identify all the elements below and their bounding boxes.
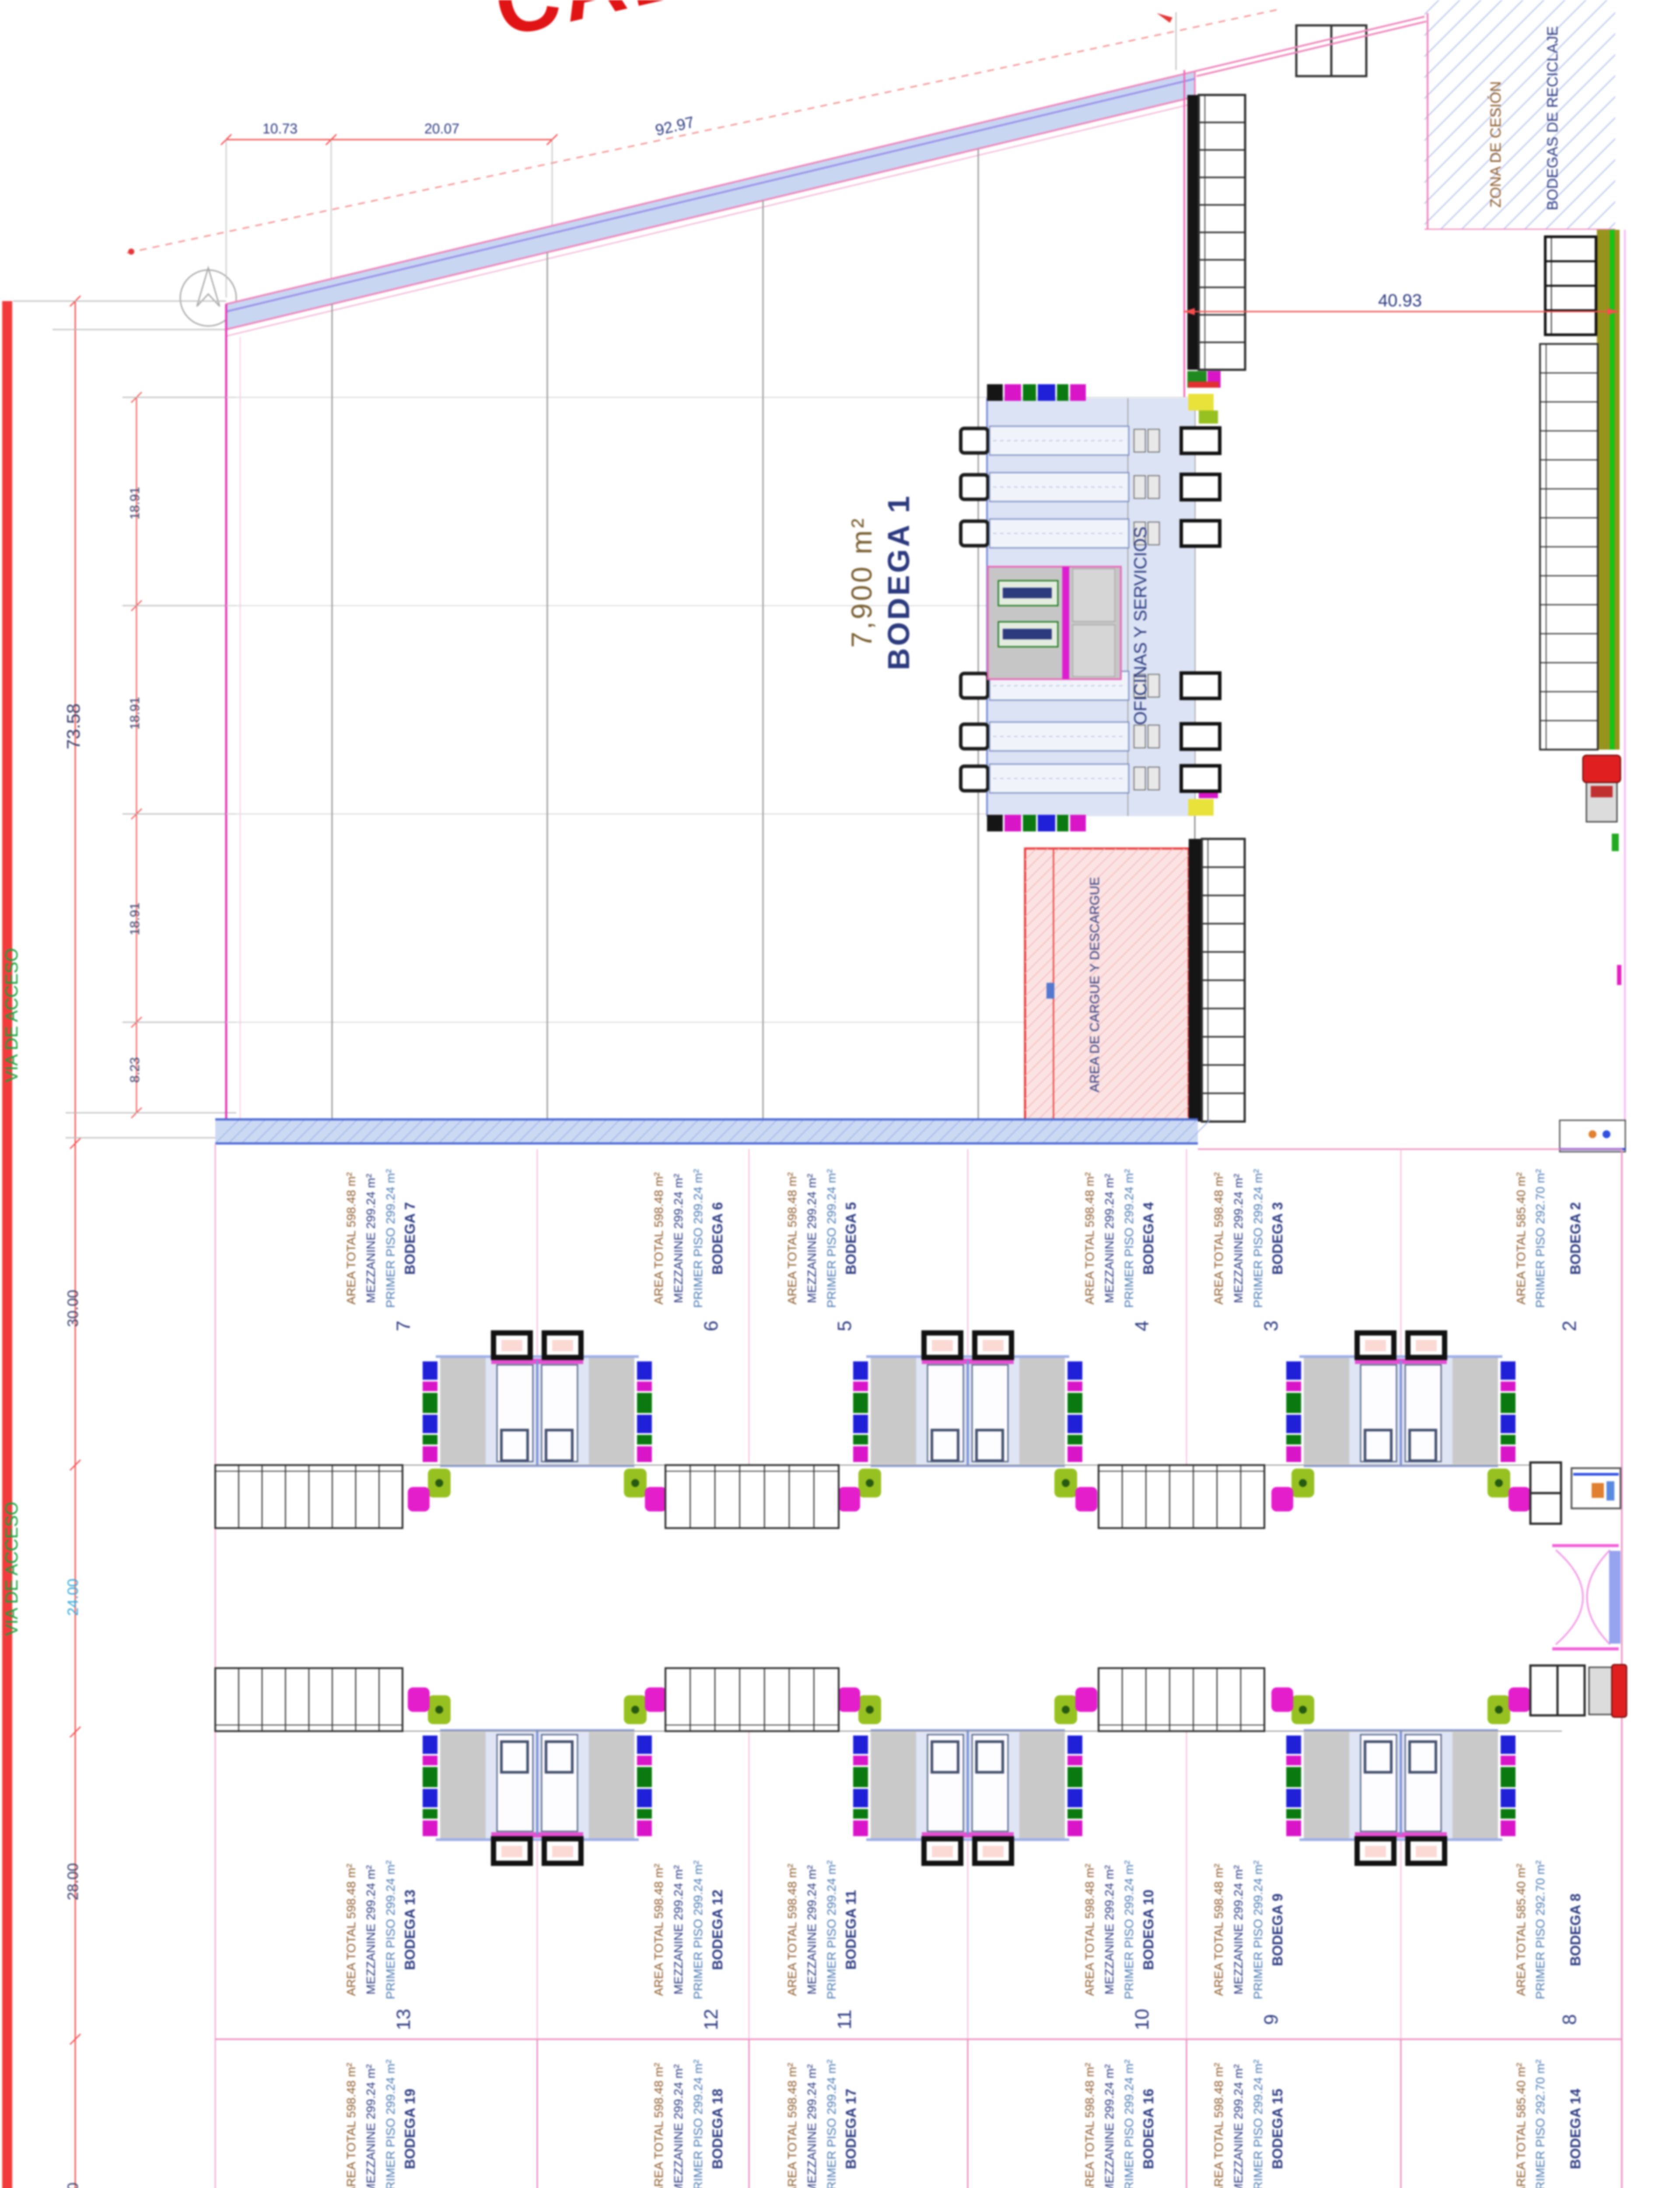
svg-text:PRIMER PISO 299.24 m²: PRIMER PISO 299.24 m² (691, 1860, 705, 1999)
svg-text:MEZZANINE 299.24 m²: MEZZANINE 299.24 m² (1102, 1865, 1116, 1995)
svg-text:PRIMER PISO 299.24 m²: PRIMER PISO 299.24 m² (384, 2059, 397, 2188)
svg-text:BODEGA 9: BODEGA 9 (1270, 1893, 1285, 1966)
svg-text:AREA TOTAL 598.48 m²: AREA TOTAL 598.48 m² (652, 1172, 665, 1304)
svg-text:28.00: 28.00 (65, 1863, 81, 1900)
svg-text:BODEGA 11: BODEGA 11 (843, 1890, 859, 1970)
svg-text:40.93: 40.93 (1378, 291, 1422, 310)
svg-text:MEZZANINE 299.24 m²: MEZZANINE 299.24 m² (364, 1865, 378, 1995)
svg-text:PRIMER PISO 299.24 m²: PRIMER PISO 299.24 m² (825, 2059, 838, 2188)
svg-text:BODEGA 12: BODEGA 12 (710, 1890, 725, 1970)
svg-text:AREA TOTAL 598.48 m²: AREA TOTAL 598.48 m² (785, 1864, 799, 1996)
svg-text:AREA TOTAL 598.48 m²: AREA TOTAL 598.48 m² (785, 1172, 799, 1304)
svg-text:MEZZANINE 299.24 m²: MEZZANINE 299.24 m² (1232, 1865, 1245, 1995)
svg-text:BODEGA 17: BODEGA 17 (843, 2089, 859, 2169)
svg-text:MEZZANINE 299.24 m²: MEZZANINE 299.24 m² (1102, 1174, 1116, 1303)
svg-text:9: 9 (1260, 2014, 1282, 2025)
svg-text:AREA TOTAL 598.48 m²: AREA TOTAL 598.48 m² (344, 1864, 358, 1996)
svg-text:AREA TOTAL 585.40 m²: AREA TOTAL 585.40 m² (1514, 1172, 1528, 1304)
svg-text:MEZZANINE 299.24 m²: MEZZANINE 299.24 m² (1232, 2064, 1245, 2188)
svg-text:2: 2 (1559, 1321, 1580, 1331)
svg-text:30.00: 30.00 (65, 2182, 81, 2188)
svg-text:AREA TOTAL 598.48 m²: AREA TOTAL 598.48 m² (785, 2063, 799, 2188)
svg-text:BODEGA 2: BODEGA 2 (1568, 1202, 1583, 1275)
svg-text:73.58: 73.58 (63, 703, 84, 749)
svg-text:AREA TOTAL 598.48 m²: AREA TOTAL 598.48 m² (1212, 1172, 1225, 1304)
svg-text:MEZZANINE 299.24 m²: MEZZANINE 299.24 m² (672, 1865, 685, 1995)
svg-text:BODEGA 5: BODEGA 5 (843, 1202, 859, 1275)
svg-text:MEZZANINE 299.24 m²: MEZZANINE 299.24 m² (805, 1174, 819, 1303)
svg-text:7: 7 (393, 1321, 414, 1331)
svg-text:13: 13 (393, 2009, 414, 2030)
svg-text:AREA TOTAL 585.40 m²: AREA TOTAL 585.40 m² (1514, 2063, 1528, 2188)
svg-text:MEZZANINE 299.24 m²: MEZZANINE 299.24 m² (364, 1174, 378, 1303)
svg-text:PRIMER PISO 299.24 m²: PRIMER PISO 299.24 m² (1251, 1169, 1265, 1308)
svg-text:BODEGA 16: BODEGA 16 (1141, 2089, 1156, 2169)
svg-text:6: 6 (700, 1321, 722, 1331)
svg-text:BODEGA 10: BODEGA 10 (1141, 1890, 1156, 1970)
svg-text:AREA TOTAL 598.48 m²: AREA TOTAL 598.48 m² (344, 1172, 358, 1304)
svg-text:OFICINAS Y SERVICIOS: OFICINAS Y SERVICIOS (1131, 526, 1150, 725)
svg-text:MEZZANINE 299.24 m²: MEZZANINE 299.24 m² (672, 1174, 685, 1303)
svg-text:VIA DE ACCESO: VIA DE ACCESO (2, 1502, 21, 1636)
svg-text:PRIMER PISO 292.70 m²: PRIMER PISO 292.70 m² (1533, 1860, 1547, 1999)
svg-text:AREA TOTAL 598.48 m²: AREA TOTAL 598.48 m² (652, 2063, 665, 2188)
svg-text:AREA TOTAL 585.40 m²: AREA TOTAL 585.40 m² (1514, 1864, 1528, 1996)
svg-text:30.00: 30.00 (65, 1290, 81, 1327)
svg-text:AREA TOTAL 598.48 m²: AREA TOTAL 598.48 m² (1212, 1864, 1225, 1996)
svg-text:AREA DE CARGUE Y DESCARGUE: AREA DE CARGUE Y DESCARGUE (1088, 877, 1102, 1092)
svg-text:BODEGA 6: BODEGA 6 (710, 1202, 725, 1275)
svg-text:18.91: 18.91 (128, 487, 142, 519)
svg-text:PRIMER PISO 299.24 m²: PRIMER PISO 299.24 m² (1122, 1860, 1136, 1999)
svg-text:PRIMER PISO 299.24 m²: PRIMER PISO 299.24 m² (384, 1860, 397, 1999)
svg-text:VIA DE ACCESO: VIA DE ACCESO (2, 948, 21, 1083)
svg-text:BODEGA 4: BODEGA 4 (1141, 1202, 1156, 1275)
svg-text:ZONA DE CESIÓN: ZONA DE CESIÓN (1487, 81, 1504, 207)
svg-text:PRIMER PISO 299.24 m²: PRIMER PISO 299.24 m² (691, 2059, 705, 2188)
svg-text:8.23: 8.23 (128, 1057, 142, 1083)
svg-text:20.07: 20.07 (424, 121, 459, 137)
svg-text:PRIMER PISO 299.24 m²: PRIMER PISO 299.24 m² (384, 1169, 397, 1308)
svg-text:BODEGA 3: BODEGA 3 (1270, 1202, 1285, 1275)
svg-text:PRIMER PISO 299.24 m²: PRIMER PISO 299.24 m² (1251, 1860, 1265, 1999)
svg-text:3: 3 (1260, 1321, 1282, 1331)
svg-text:PRIMER PISO 299.24 m²: PRIMER PISO 299.24 m² (825, 1860, 838, 1999)
svg-text:4: 4 (1131, 1321, 1153, 1331)
svg-text:PRIMER PISO 299.24 m²: PRIMER PISO 299.24 m² (825, 1169, 838, 1308)
svg-text:10: 10 (1131, 2009, 1153, 2030)
svg-text:MEZZANINE 299.24 m²: MEZZANINE 299.24 m² (364, 2064, 378, 2188)
svg-text:MEZZANINE 299.24 m²: MEZZANINE 299.24 m² (805, 2064, 819, 2188)
svg-text:18.91: 18.91 (128, 697, 142, 729)
svg-text:PRIMER PISO 299.24 m²: PRIMER PISO 299.24 m² (1122, 2059, 1136, 2188)
svg-text:8: 8 (1559, 2014, 1580, 2025)
svg-text:BODEGA 15: BODEGA 15 (1270, 2089, 1285, 2169)
svg-text:MEZZANINE 299.24 m²: MEZZANINE 299.24 m² (672, 2064, 685, 2188)
svg-text:BODEGA 19: BODEGA 19 (402, 2089, 418, 2169)
svg-text:PRIMER PISO 299.24 m²: PRIMER PISO 299.24 m² (691, 1169, 705, 1308)
svg-text:BODEGA 7: BODEGA 7 (402, 1202, 418, 1275)
svg-text:BODEGA 18: BODEGA 18 (710, 2089, 725, 2169)
svg-text:PRIMER PISO 292.70 m²: PRIMER PISO 292.70 m² (1533, 1169, 1547, 1308)
svg-text:BODEGA 14: BODEGA 14 (1568, 2089, 1583, 2169)
svg-text:BODEGA 13: BODEGA 13 (402, 1890, 418, 1970)
svg-text:24.00: 24.00 (65, 1578, 81, 1616)
svg-text:BODEGA 8: BODEGA 8 (1568, 1893, 1583, 1966)
svg-text:12: 12 (700, 2009, 722, 2030)
svg-text:MEZZANINE 299.24 m²: MEZZANINE 299.24 m² (1102, 2064, 1116, 2188)
svg-text:PRIMER PISO 299.24 m²: PRIMER PISO 299.24 m² (1251, 2059, 1265, 2188)
svg-text:18.91: 18.91 (128, 902, 142, 935)
svg-text:10.73: 10.73 (262, 121, 297, 137)
svg-text:BODEGAS DE RECICLAJE: BODEGAS DE RECICLAJE (1544, 26, 1561, 210)
svg-text:MEZZANINE 299.24 m²: MEZZANINE 299.24 m² (1232, 1174, 1245, 1303)
svg-text:MEZZANINE 299.24 m²: MEZZANINE 299.24 m² (805, 1865, 819, 1995)
svg-text:AREA TOTAL 598.48 m²: AREA TOTAL 598.48 m² (1212, 2063, 1225, 2188)
svg-text:AREA TOTAL 598.48 m²: AREA TOTAL 598.48 m² (652, 1864, 665, 1996)
svg-text:11: 11 (834, 2009, 855, 2030)
svg-text:5: 5 (834, 1321, 855, 1331)
svg-text:AREA TOTAL 598.48 m²: AREA TOTAL 598.48 m² (1083, 2063, 1096, 2188)
svg-text:7,900 m²: 7,900 m² (845, 516, 878, 648)
svg-text:PRIMER PISO 292.70 m²: PRIMER PISO 292.70 m² (1533, 2059, 1547, 2188)
svg-text:BODEGA 1: BODEGA 1 (882, 494, 916, 670)
svg-text:AREA TOTAL 598.48 m²: AREA TOTAL 598.48 m² (1083, 1172, 1096, 1304)
svg-text:AREA TOTAL 598.48 m²: AREA TOTAL 598.48 m² (344, 2063, 358, 2188)
svg-text:AREA TOTAL 598.48 m²: AREA TOTAL 598.48 m² (1083, 1864, 1096, 1996)
svg-text:PRIMER PISO 299.24 m²: PRIMER PISO 299.24 m² (1122, 1169, 1136, 1308)
